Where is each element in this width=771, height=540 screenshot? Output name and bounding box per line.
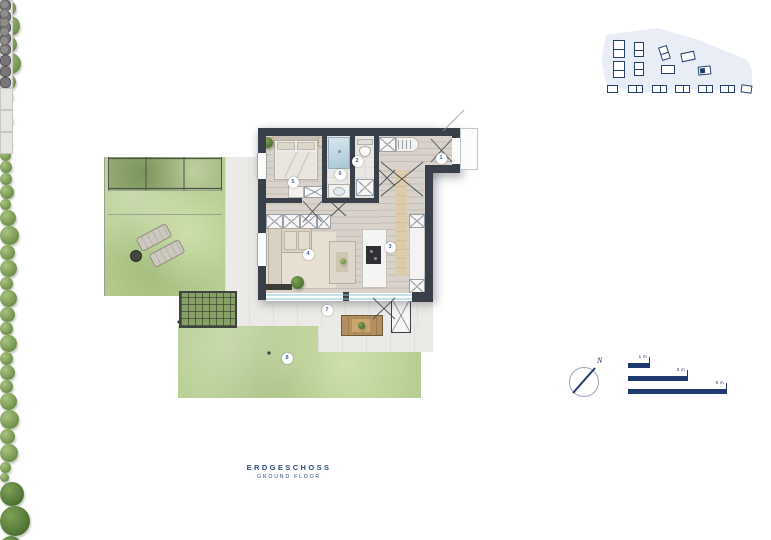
site-building xyxy=(658,45,671,61)
bed-blanket xyxy=(276,152,316,178)
burner xyxy=(370,250,373,253)
closet-unit xyxy=(317,214,331,229)
bush xyxy=(0,473,9,482)
plan-title-block: ERDGESCHOSS GROUND FLOOR xyxy=(214,463,364,480)
bush xyxy=(0,335,17,352)
outdoor-chair xyxy=(0,55,11,66)
paving-slab xyxy=(0,88,13,110)
site-building xyxy=(652,85,667,93)
sofa-cushion xyxy=(298,231,310,250)
pillow xyxy=(277,142,295,150)
entry-door-opening xyxy=(452,138,460,164)
site-highlight-unit xyxy=(698,65,712,75)
scale-bar-3m xyxy=(628,376,688,381)
scale-bar-1m xyxy=(628,363,650,368)
bush xyxy=(0,393,17,410)
shower xyxy=(328,137,350,169)
sofa-body xyxy=(268,228,282,285)
building-split xyxy=(614,70,624,71)
building-split xyxy=(635,50,643,51)
site-buildings xyxy=(600,25,752,105)
coat-hangers xyxy=(398,140,412,149)
fridge xyxy=(409,214,425,228)
room-marker-2: 2 xyxy=(352,156,363,167)
scale-label: 5 m xyxy=(705,380,724,385)
kitchen-runner-rug xyxy=(396,170,407,276)
site-plan xyxy=(600,25,752,105)
site-building xyxy=(607,85,618,93)
compass: N xyxy=(563,350,633,400)
window-living xyxy=(257,233,267,266)
indoor-chair xyxy=(0,18,9,27)
closet-unit xyxy=(283,214,300,229)
terrace-storage-box xyxy=(391,298,411,333)
wall-bath-right xyxy=(374,136,379,198)
sofa-cushion xyxy=(284,231,297,250)
wall-bedroom-right xyxy=(322,136,327,198)
bush xyxy=(0,245,15,260)
outdoor-chair xyxy=(0,77,11,88)
site-building xyxy=(628,85,643,93)
bush xyxy=(0,307,15,322)
bush xyxy=(0,290,17,307)
pillow xyxy=(297,142,315,150)
indoor-chair xyxy=(0,0,9,9)
paving-slab xyxy=(0,132,13,154)
bush xyxy=(0,322,13,335)
building-split xyxy=(683,86,684,92)
indoor-chair xyxy=(0,9,9,18)
cooktop xyxy=(366,246,381,264)
site-building xyxy=(661,65,675,74)
building-split xyxy=(636,86,637,92)
facade-corner-wall xyxy=(412,292,433,302)
pergola-trellis xyxy=(179,291,237,328)
glass-facade-sill xyxy=(266,293,412,301)
site-building xyxy=(675,85,690,93)
bush xyxy=(0,260,17,277)
bush xyxy=(0,444,18,462)
dresser xyxy=(288,186,304,198)
scale-tick xyxy=(649,357,650,363)
toilet-tank xyxy=(357,139,373,145)
building-split xyxy=(614,49,624,50)
scale-bar-5m xyxy=(628,389,727,394)
tv-board xyxy=(266,284,292,290)
site-building xyxy=(613,40,625,58)
hall-cabinet xyxy=(379,137,396,152)
room-marker-5: 5 xyxy=(288,177,299,188)
planter-bed xyxy=(108,157,222,190)
paving-slab xyxy=(0,110,13,132)
building-split xyxy=(661,52,668,55)
room-marker-4: 4 xyxy=(303,249,314,260)
bush xyxy=(0,365,15,380)
bush xyxy=(0,226,19,245)
burner xyxy=(374,257,377,260)
scale-tick xyxy=(726,383,727,389)
bush xyxy=(0,352,13,365)
closet-unit xyxy=(266,214,283,229)
bush xyxy=(0,380,13,393)
indoor-chairs xyxy=(0,0,9,54)
wall-wet-bottom xyxy=(322,198,379,203)
bush xyxy=(0,277,13,290)
bush xyxy=(0,429,15,444)
highlight-fill xyxy=(700,68,705,73)
tree-canopy xyxy=(0,536,22,540)
scale-label: 1 m xyxy=(628,354,647,359)
facade-post xyxy=(343,292,349,301)
room-marker-7: 7 xyxy=(322,305,333,316)
window-bedroom xyxy=(257,153,267,179)
site-building xyxy=(740,84,752,93)
garden-side-table xyxy=(130,250,142,262)
tree-canopy xyxy=(0,482,24,506)
terrace-side-strip xyxy=(225,157,258,296)
room-marker-8: 8 xyxy=(282,353,293,364)
building-split xyxy=(728,86,729,92)
bush xyxy=(0,462,11,473)
closet-unit xyxy=(300,214,317,229)
plan-title-english: GROUND FLOOR xyxy=(214,474,364,480)
building-split xyxy=(706,86,707,92)
indoor-chair xyxy=(0,45,9,54)
compass-north-label: N xyxy=(596,356,603,365)
scale-label: 3 m xyxy=(666,367,685,372)
bush xyxy=(0,199,11,210)
site-building xyxy=(634,62,644,76)
room-marker-6: 6 xyxy=(335,169,346,180)
building-split xyxy=(660,86,661,92)
indoor-centerpiece xyxy=(340,258,346,264)
plant-living xyxy=(291,276,304,289)
sink-basin xyxy=(333,187,345,196)
table-centerpiece xyxy=(358,322,365,329)
wall-right-lower xyxy=(425,165,433,300)
bush xyxy=(0,410,19,429)
washing-machine xyxy=(356,179,374,196)
wall-bedroom-bottom xyxy=(266,198,302,203)
room-marker-1: 1 xyxy=(436,153,447,164)
shower-drain xyxy=(338,150,341,153)
site-building xyxy=(720,85,735,93)
bush xyxy=(0,185,14,199)
outdoor-chair xyxy=(0,66,11,77)
scale-tick xyxy=(687,370,688,376)
wall-top xyxy=(258,128,460,136)
tree-canopy xyxy=(0,506,30,536)
bush xyxy=(0,161,12,173)
neighbor-porch xyxy=(460,128,478,170)
room-marker-3: 3 xyxy=(385,242,396,253)
plan-title-german: ERDGESCHOSS xyxy=(214,463,364,472)
indoor-chair xyxy=(0,27,9,36)
bush xyxy=(0,173,12,185)
indoor-chair xyxy=(0,36,9,45)
site-building xyxy=(698,85,713,93)
site-building xyxy=(680,51,696,63)
floor-plan-page: 12654378 N 1 m3 m5 m ERDGESCHOSS GROUND … xyxy=(0,0,771,540)
wall-wet-divider xyxy=(350,136,355,198)
site-building xyxy=(613,61,625,78)
bush xyxy=(0,210,16,226)
building-split xyxy=(635,69,643,70)
site-building xyxy=(634,42,644,57)
